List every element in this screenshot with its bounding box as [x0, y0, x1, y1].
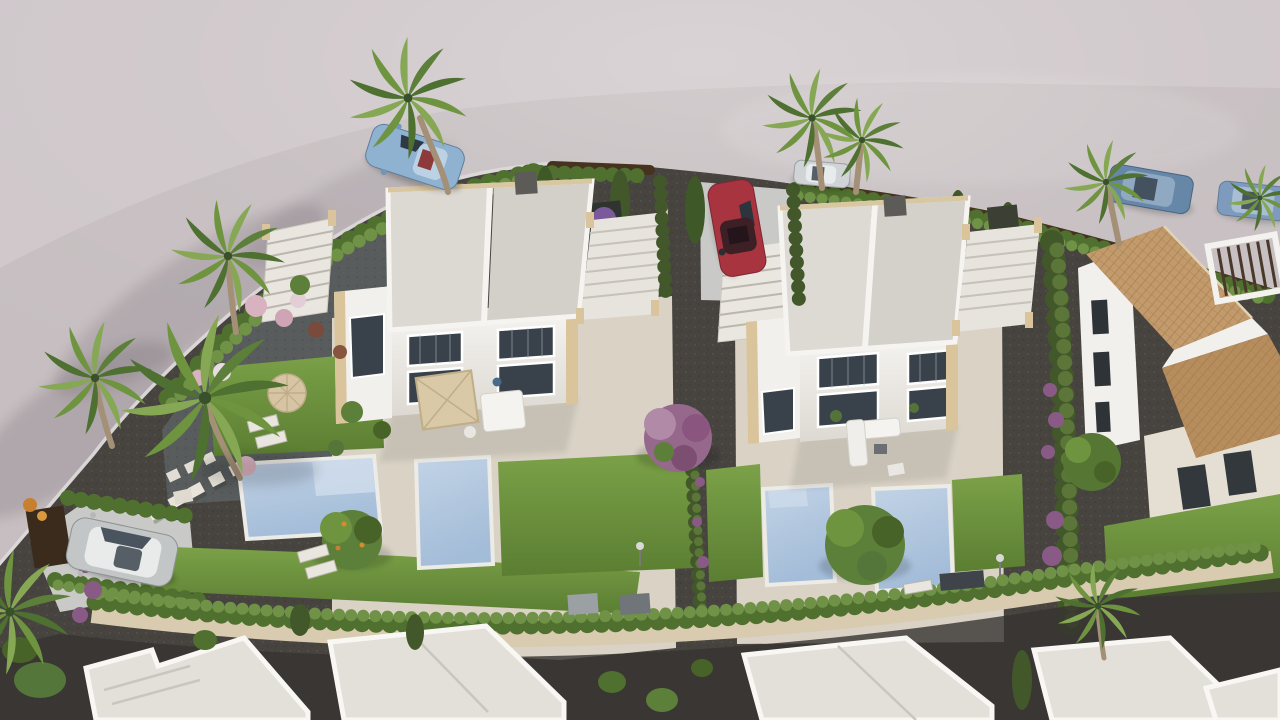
villa-left-chimney [514, 171, 537, 194]
person-figure [719, 249, 726, 256]
villa-right-corner-trim [946, 339, 958, 431]
side-table-left [464, 426, 476, 438]
outdoor-sofa-left [480, 390, 526, 432]
aerial-render-stage [0, 0, 1280, 720]
blue-pot [493, 378, 502, 387]
villa-left-roof-b [488, 181, 592, 322]
plant-pot-1 [830, 410, 842, 422]
villa-right-chimney [883, 195, 906, 216]
aerial-render [0, 0, 1280, 720]
villa-right-annex-door [762, 388, 794, 434]
pool-1-steps [312, 458, 375, 496]
lawn-right-villa-right [952, 474, 1025, 572]
pool-3-steps [768, 489, 808, 508]
villa-left-annex-window [350, 314, 384, 378]
roof-planter [987, 204, 1019, 229]
villa-left-corner-trim [566, 315, 578, 405]
lawn-right-villa-left [706, 464, 763, 582]
villa-left-roof-a [388, 186, 490, 330]
coffee-table [874, 444, 887, 454]
pool-2 [416, 457, 493, 568]
plant-pot-2 [909, 403, 919, 413]
palm-shadow [198, 454, 318, 486]
outdoor-sofa-right-b [846, 419, 868, 466]
lawn-left-villa-right [498, 452, 694, 576]
villa-right-annex-quoins [746, 321, 759, 444]
